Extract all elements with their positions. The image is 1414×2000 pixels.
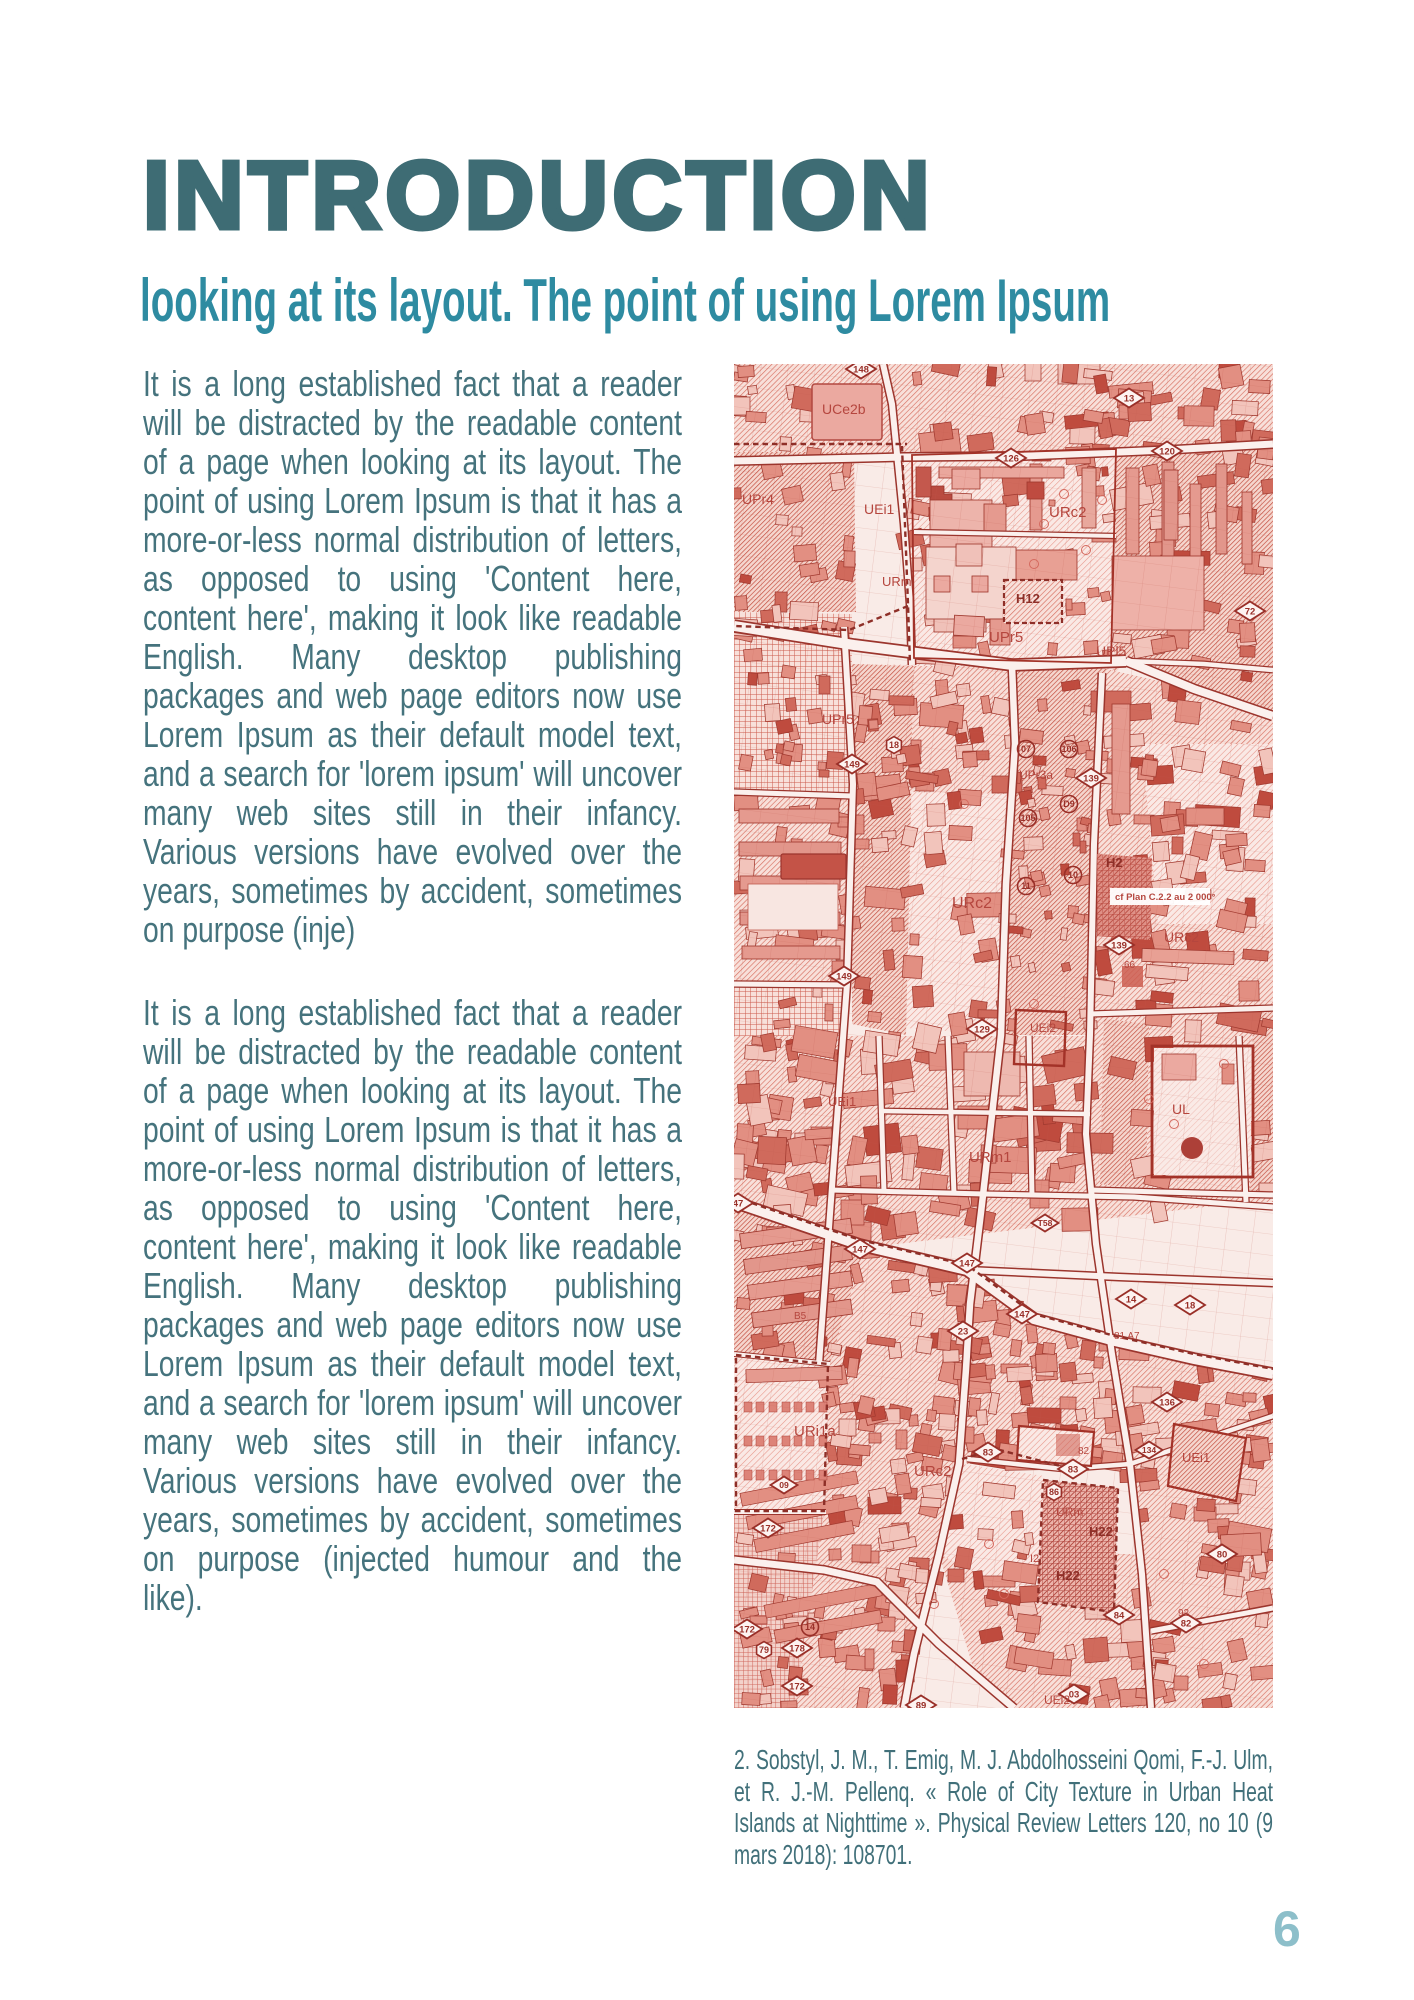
svg-text:URm: URm: [1056, 1505, 1083, 1519]
svg-text:149: 149: [836, 971, 852, 982]
svg-text:82: 82: [1181, 1618, 1192, 1629]
svg-text:URc2: URc2: [914, 1463, 952, 1480]
svg-text:147: 147: [852, 1244, 868, 1255]
svg-text:H22: H22: [1056, 1568, 1080, 1583]
svg-text:UPr4: UPr4: [742, 491, 774, 507]
svg-text:UEi1: UEi1: [864, 501, 895, 517]
svg-text:92: 92: [1178, 1608, 1190, 1619]
svg-text:66: 66: [1124, 960, 1136, 971]
svg-text:81 A7: 81 A7: [1114, 1331, 1140, 1342]
svg-text:139: 139: [1111, 940, 1127, 951]
svg-text:07: 07: [1021, 744, 1031, 754]
svg-text:86: 86: [1049, 1487, 1059, 1497]
svg-text:82: 82: [1078, 1446, 1090, 1457]
svg-text:UEi2: UEi2: [1030, 1021, 1056, 1035]
svg-text:80: 80: [1217, 1549, 1228, 1560]
svg-text:83: 83: [983, 1447, 994, 1458]
svg-text:147: 147: [959, 1258, 975, 1269]
svg-text:136: 136: [1159, 1397, 1175, 1408]
svg-text:UL: UL: [1172, 1101, 1190, 1117]
svg-text:B5: B5: [794, 1311, 807, 1322]
svg-text:172: 172: [739, 1624, 755, 1635]
svg-text:134: 134: [1142, 1445, 1157, 1455]
svg-text:H12: H12: [1016, 591, 1040, 606]
svg-text:UEi1: UEi1: [828, 1094, 856, 1109]
svg-text:URc2: URc2: [1049, 504, 1087, 521]
svg-text:147: 147: [1014, 1309, 1030, 1320]
svg-text:03: 03: [1069, 1689, 1080, 1700]
svg-text:172: 172: [789, 1681, 805, 1692]
svg-text:14: 14: [1126, 1294, 1137, 1305]
svg-text:83: 83: [1068, 1464, 1079, 1475]
svg-text:79: 79: [759, 1645, 769, 1655]
svg-text:47: 47: [734, 1198, 743, 1209]
svg-text:120: 120: [1159, 446, 1175, 457]
svg-text:178: 178: [789, 1643, 805, 1654]
svg-text:UPr5: UPr5: [822, 711, 854, 727]
svg-text:URc2: URc2: [952, 895, 992, 912]
svg-text:UEi2: UEi2: [1044, 1693, 1070, 1707]
svg-text:UPr5: UPr5: [989, 629, 1023, 646]
svg-text:13: 13: [1124, 393, 1135, 404]
svg-text:URm: URm: [882, 574, 912, 589]
svg-text:148: 148: [853, 364, 869, 375]
svg-text:106: 106: [1061, 744, 1076, 754]
svg-text:T58: T58: [1038, 1218, 1053, 1228]
svg-text:D9: D9: [1063, 799, 1075, 809]
svg-text:89: 89: [916, 1700, 927, 1708]
svg-text:23: 23: [958, 1326, 969, 1337]
svg-text:18: 18: [1185, 1300, 1196, 1311]
svg-text:H2: H2: [1106, 855, 1123, 870]
svg-text:11: 11: [1021, 881, 1031, 891]
svg-text:172: 172: [760, 1523, 776, 1534]
svg-text:cf Plan C.2.2 au 2 000°: cf Plan C.2.2 au 2 000°: [1115, 892, 1216, 903]
svg-text:72: 72: [1245, 606, 1256, 617]
svg-text:149: 149: [844, 759, 860, 770]
svg-text:10: 10: [1068, 870, 1078, 880]
svg-text:I2: I2: [1030, 1553, 1039, 1565]
svg-text:URi1a: URi1a: [794, 1423, 836, 1440]
svg-text:84: 84: [1114, 1610, 1125, 1621]
svg-text:URc2: URc2: [1164, 929, 1199, 945]
svg-text:URm1: URm1: [969, 1149, 1012, 1166]
svg-text:H22: H22: [1089, 1524, 1113, 1539]
svg-text:139: 139: [1083, 773, 1099, 784]
svg-text:UPr3a: UPr3a: [1019, 768, 1053, 782]
svg-text:18: 18: [889, 740, 899, 750]
svg-text:09: 09: [779, 1480, 789, 1490]
svg-text:UCe2b: UCe2b: [822, 401, 866, 417]
svg-text:126: 126: [1003, 453, 1019, 464]
svg-text:14: 14: [805, 1622, 815, 1632]
svg-text:129: 129: [974, 1024, 990, 1035]
svg-text:UEi1: UEi1: [1182, 1450, 1210, 1465]
svg-text:105: 105: [1020, 813, 1035, 823]
svg-text:UPl5: UPl5: [1096, 643, 1127, 659]
